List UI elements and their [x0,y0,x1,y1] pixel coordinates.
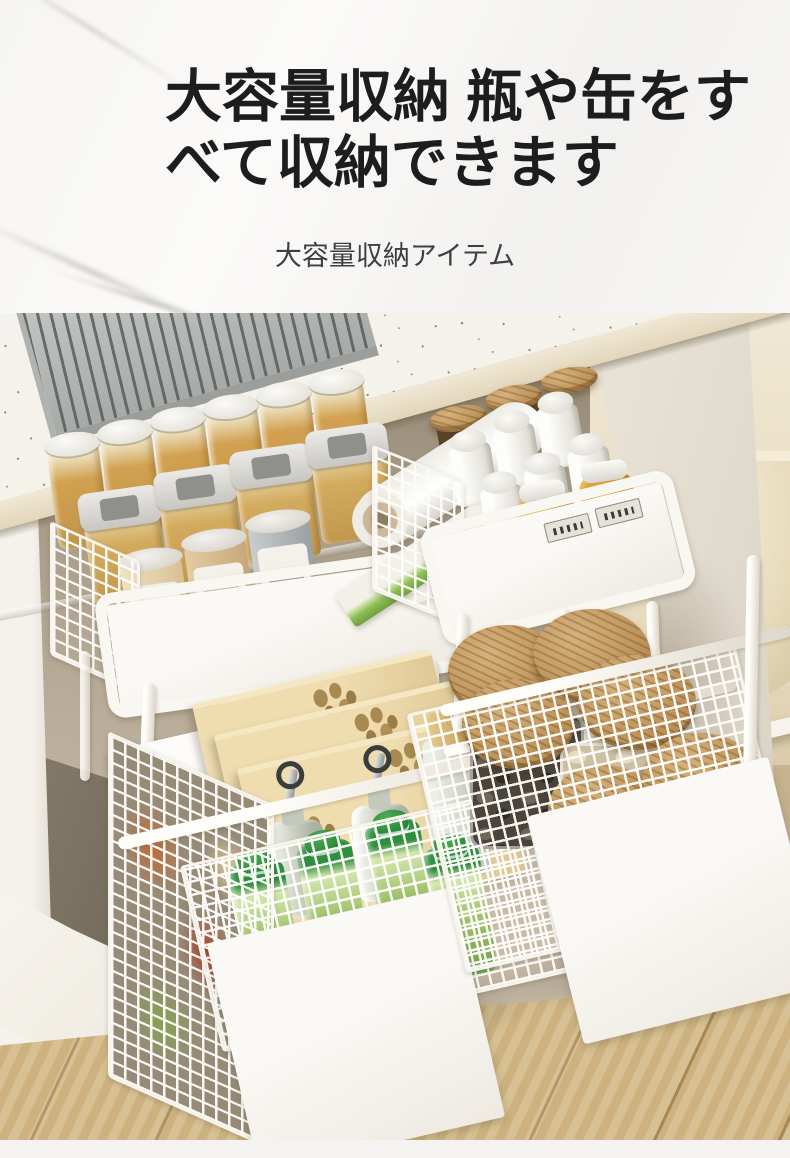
container-lid-window [251,453,292,480]
coffee-bean-print [312,688,330,709]
product-photo [0,313,790,1140]
container-lid-window [327,432,368,459]
title-line-2: べて収納できます [165,130,751,196]
jar-dome-lid [449,427,488,454]
subtitle: 大容量収納アイテム [0,234,790,273]
title-line-1: 大容量収納 瓶や缶をす [165,64,751,130]
container-lid-window [175,474,216,501]
jar-lid [43,429,102,460]
bottom-strip [0,1140,790,1158]
header: 大容量収納 瓶や缶をす べて収納できます 大容量収納アイテム [0,0,790,313]
cruet-handle [275,760,305,790]
container-lid-window [99,495,140,522]
page-title: 大容量収納 瓶や缶をす べて収納できます [165,64,751,196]
product-page: 大容量収納 瓶や缶をす べて収納できます 大容量収納アイテム [0,0,790,1158]
frame-leg [80,651,90,781]
cruet-handle [362,744,392,774]
coffee-bean-print [353,712,371,733]
